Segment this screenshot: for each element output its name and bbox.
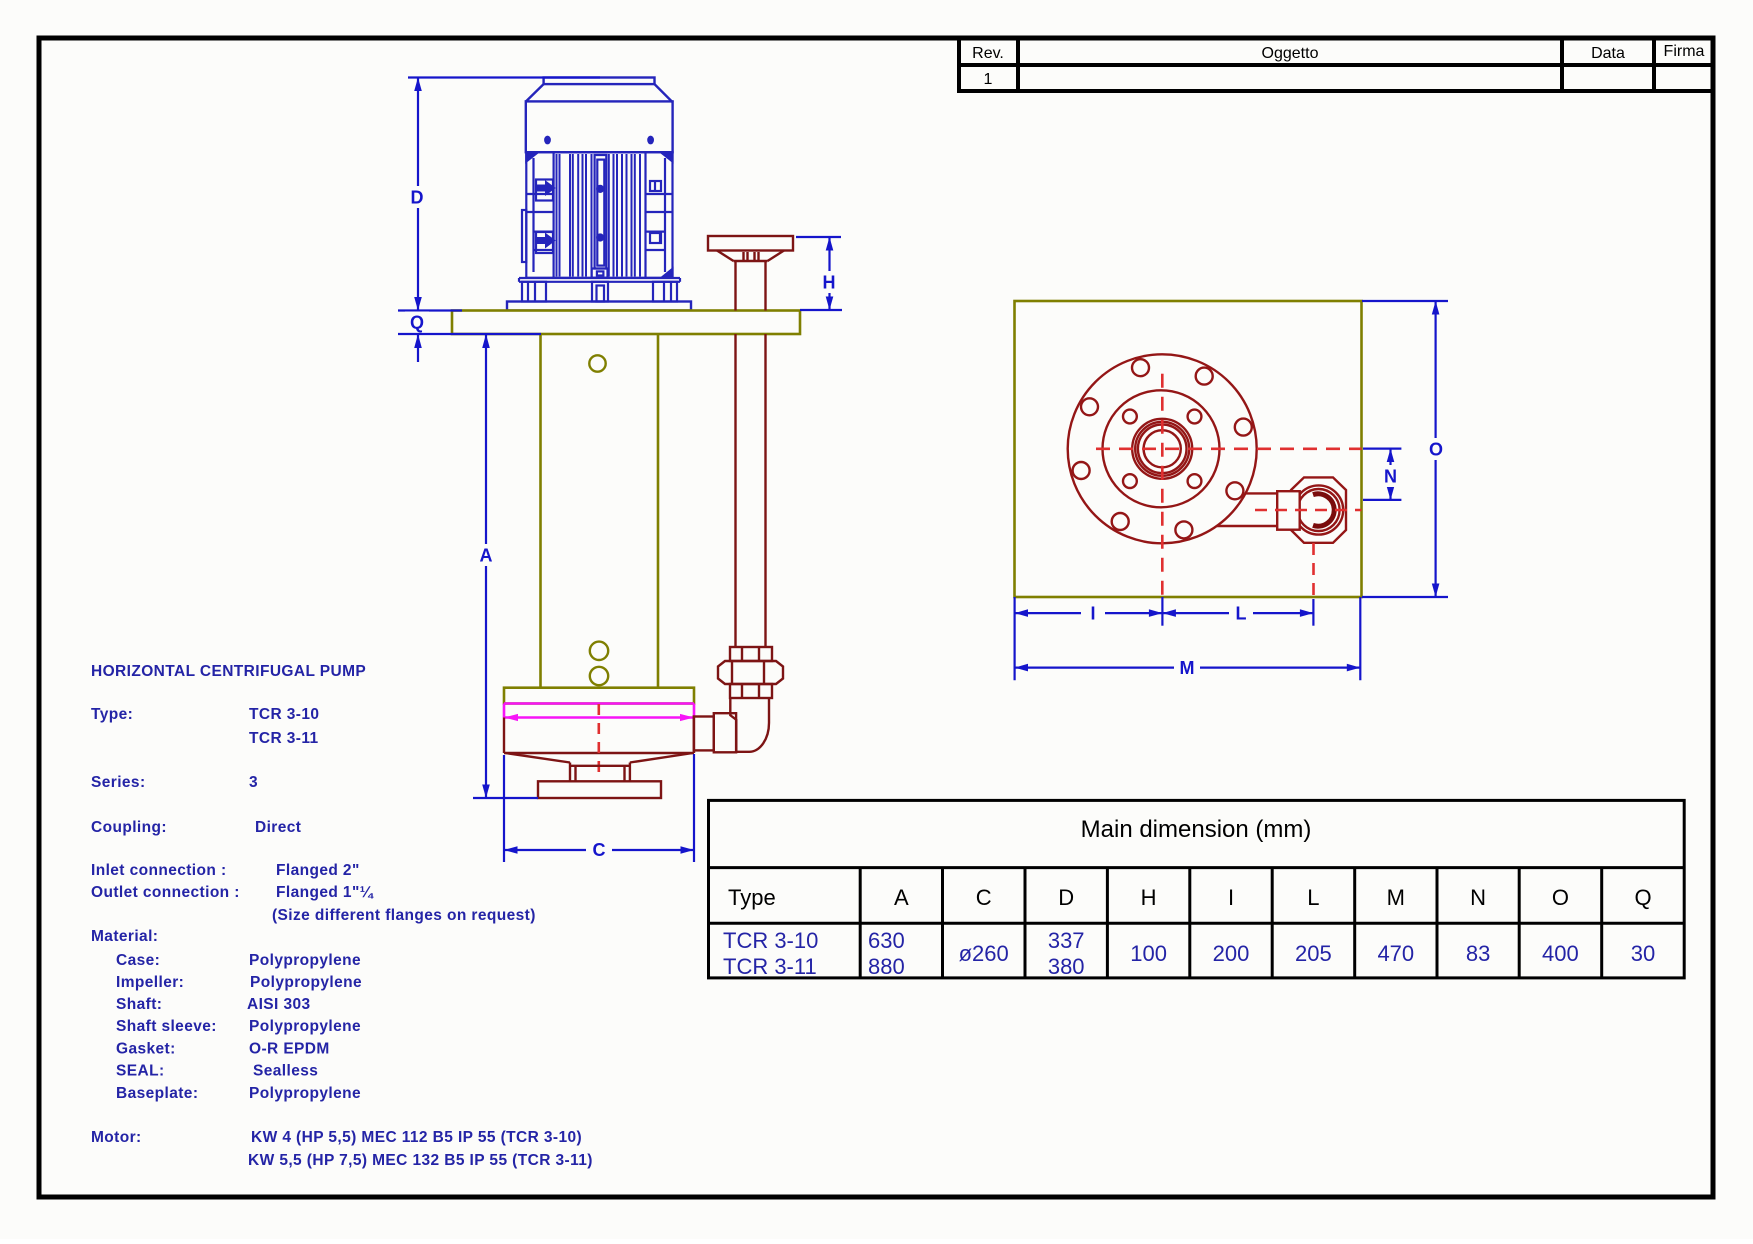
svg-text:H: H xyxy=(823,273,836,293)
svg-text:A: A xyxy=(480,546,493,566)
svg-text:TCR 3-11: TCR 3-11 xyxy=(249,730,319,747)
svg-text:M: M xyxy=(1387,885,1405,910)
svg-text:N: N xyxy=(1384,467,1397,487)
svg-text:D: D xyxy=(411,188,424,208)
svg-text:83: 83 xyxy=(1466,941,1490,966)
svg-text:KW 5,5 (HP 7,5) MEC 132 B5 IP: KW 5,5 (HP 7,5) MEC 132 B5 IP 55 (TCR 3-… xyxy=(248,1152,593,1169)
svg-text:380: 380 xyxy=(1048,954,1085,979)
svg-text:Q: Q xyxy=(410,313,424,333)
svg-text:TCR 3-10: TCR 3-10 xyxy=(249,706,319,723)
svg-text:Sealless: Sealless xyxy=(253,1063,318,1080)
svg-text:3: 3 xyxy=(249,774,258,791)
svg-text:1: 1 xyxy=(984,71,993,88)
svg-text:KW 4 (HP 5,5) MEC 112 B5 IP 5: KW 4 (HP 5,5) MEC 112 B5 IP 55 (TCR 3-10… xyxy=(251,1129,582,1146)
svg-text:C: C xyxy=(976,885,992,910)
svg-text:Rev.: Rev. xyxy=(972,45,1004,62)
svg-text:O: O xyxy=(1552,885,1569,910)
svg-text:880: 880 xyxy=(868,954,905,979)
svg-text:Type: Type xyxy=(728,885,776,910)
svg-text:Data: Data xyxy=(1591,45,1625,62)
svg-text:630: 630 xyxy=(868,928,905,953)
svg-text:N: N xyxy=(1470,885,1486,910)
svg-text:30: 30 xyxy=(1631,941,1655,966)
svg-text:C: C xyxy=(593,840,606,860)
svg-text:Flanged 1"¼: Flanged 1"¼ xyxy=(276,884,374,901)
svg-text:HORIZONTAL CENTRIFUGAL PUMP: HORIZONTAL CENTRIFUGAL PUMP xyxy=(91,663,366,680)
svg-text:SEAL:: SEAL: xyxy=(116,1063,165,1080)
svg-text:TCR 3-11: TCR 3-11 xyxy=(723,954,817,979)
svg-text:A: A xyxy=(894,885,909,910)
svg-text:I: I xyxy=(1090,604,1095,624)
svg-text:Main dimension (mm): Main dimension (mm) xyxy=(1081,816,1312,843)
svg-text:M: M xyxy=(1180,658,1195,678)
svg-text:Direct: Direct xyxy=(255,819,301,836)
svg-text:Shaft:: Shaft: xyxy=(116,996,162,1013)
svg-text:ø260: ø260 xyxy=(959,941,1009,966)
svg-text:O-R EPDM: O-R EPDM xyxy=(249,1041,330,1058)
svg-text:Outlet connection :: Outlet connection : xyxy=(91,884,240,901)
svg-text:Coupling:: Coupling: xyxy=(91,819,167,836)
svg-text:AISI 303: AISI 303 xyxy=(247,996,311,1013)
svg-text:337: 337 xyxy=(1048,928,1085,953)
svg-text:Polypropylene: Polypropylene xyxy=(249,1018,361,1035)
svg-text:D: D xyxy=(1058,885,1074,910)
svg-text:Material:: Material: xyxy=(91,928,158,945)
svg-text:Baseplate:: Baseplate: xyxy=(116,1085,198,1102)
svg-text:I: I xyxy=(1228,885,1234,910)
svg-text:205: 205 xyxy=(1295,941,1332,966)
svg-text:Oggetto: Oggetto xyxy=(1262,45,1319,62)
svg-text:Firma: Firma xyxy=(1664,43,1705,60)
svg-text:Gasket:: Gasket: xyxy=(116,1041,176,1058)
svg-text:Shaft sleeve:: Shaft sleeve: xyxy=(116,1018,217,1035)
svg-text:H: H xyxy=(1141,885,1157,910)
svg-text:O: O xyxy=(1429,440,1443,460)
svg-text:L: L xyxy=(1236,604,1247,624)
svg-text:Case:: Case: xyxy=(116,952,160,969)
svg-text:Polypropylene: Polypropylene xyxy=(249,952,361,969)
svg-text:Polypropylene: Polypropylene xyxy=(249,1085,361,1102)
svg-text:100: 100 xyxy=(1130,941,1167,966)
svg-text:(Size different flanges on req: (Size different flanges on request) xyxy=(272,907,536,924)
svg-text:200: 200 xyxy=(1213,941,1250,966)
svg-text:470: 470 xyxy=(1377,941,1414,966)
svg-text:400: 400 xyxy=(1542,941,1579,966)
svg-text:TCR 3-10: TCR 3-10 xyxy=(723,928,818,953)
svg-text:Polypropylene: Polypropylene xyxy=(250,974,362,991)
svg-text:Motor:: Motor: xyxy=(91,1129,142,1146)
svg-text:L: L xyxy=(1307,885,1319,910)
svg-text:Type:: Type: xyxy=(91,706,133,723)
svg-text:Inlet connection :: Inlet connection : xyxy=(91,862,227,879)
svg-text:Impeller:: Impeller: xyxy=(116,974,184,991)
svg-text:Flanged 2": Flanged 2" xyxy=(276,862,360,879)
svg-text:Q: Q xyxy=(1634,885,1651,910)
svg-text:Series:: Series: xyxy=(91,774,146,791)
